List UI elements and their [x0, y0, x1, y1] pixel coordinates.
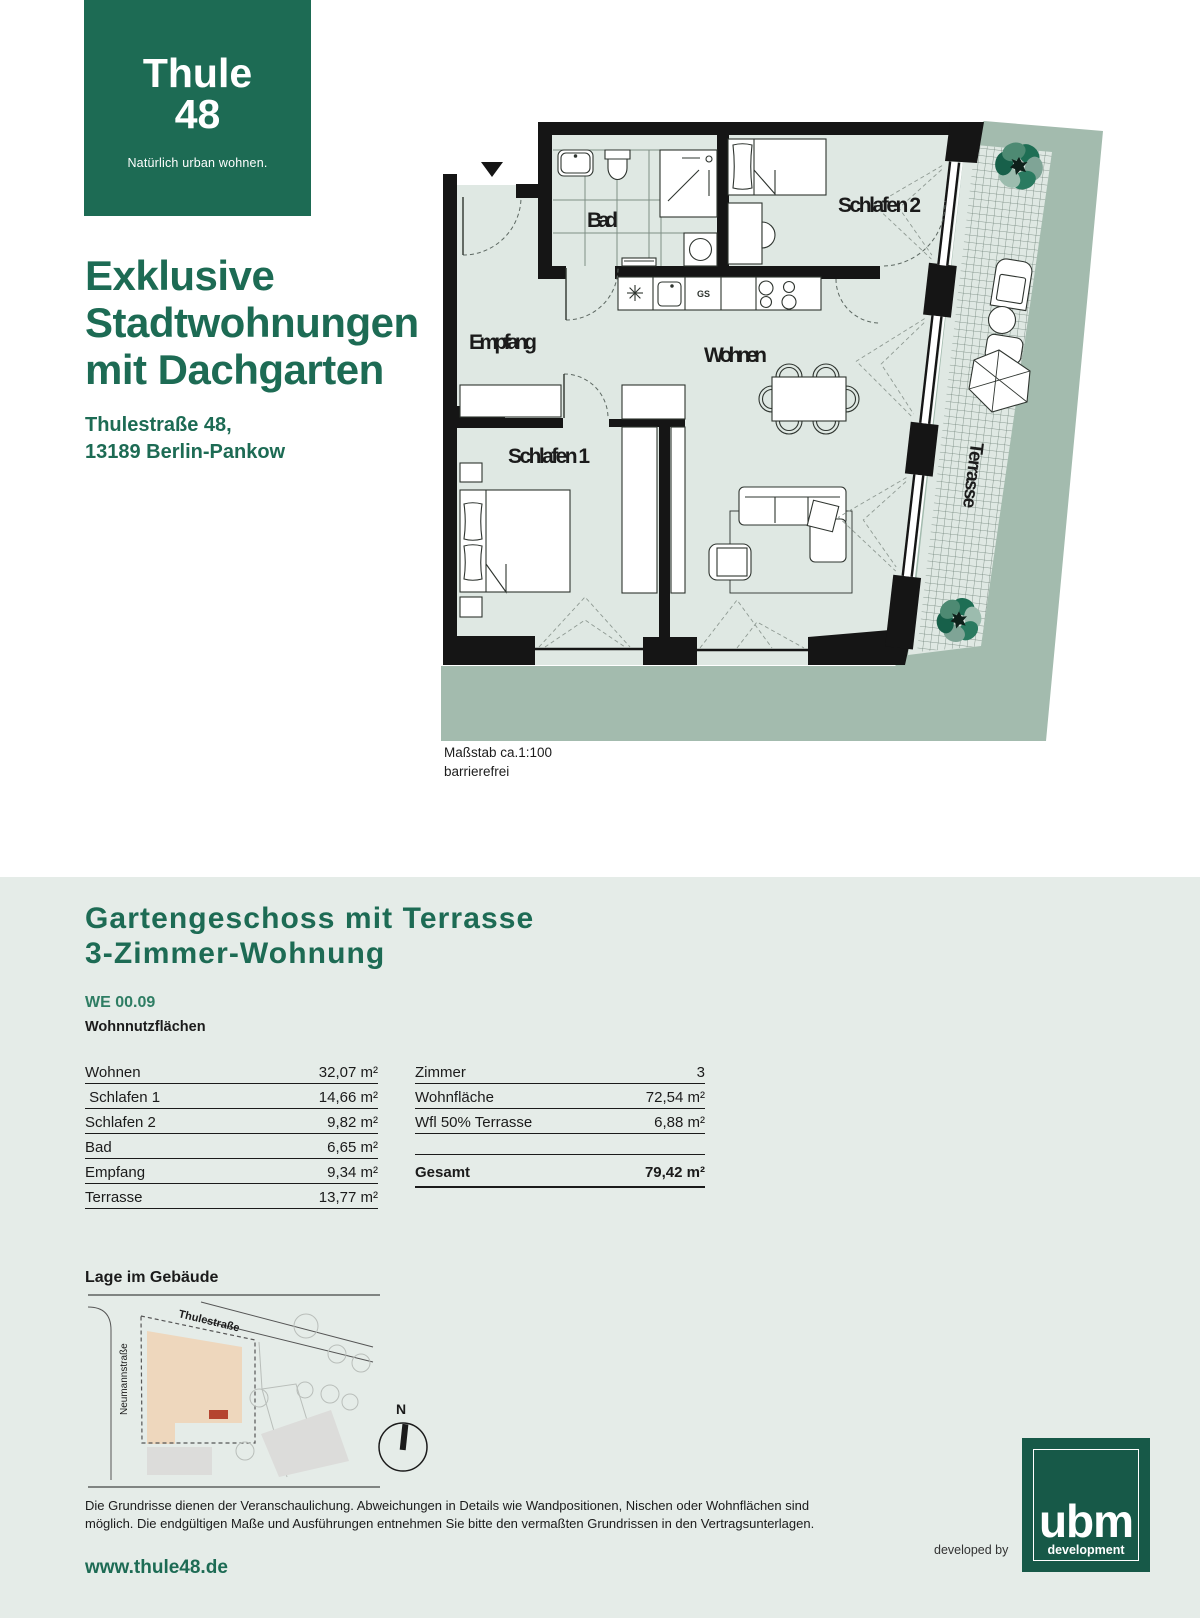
svg-text:N: N — [396, 1401, 406, 1417]
svg-text:Bad: Bad — [587, 209, 618, 232]
svg-text:Schlafen 2: Schlafen 2 — [838, 194, 921, 217]
svg-text:Empfang: Empfang — [469, 331, 537, 354]
svg-text:Neumannstraße: Neumannstraße — [119, 1343, 130, 1415]
svg-text:Schlafen 1: Schlafen 1 — [508, 445, 590, 468]
svg-text:Thulestraße: Thulestraße — [177, 1308, 240, 1334]
svg-text:Maßstab ca.1:100: Maßstab ca.1:100 — [444, 745, 552, 760]
svg-text:GS: GS — [697, 289, 710, 299]
svg-text:barrierefrei: barrierefrei — [444, 764, 509, 779]
svg-text:Wohnen: Wohnen — [704, 344, 767, 367]
